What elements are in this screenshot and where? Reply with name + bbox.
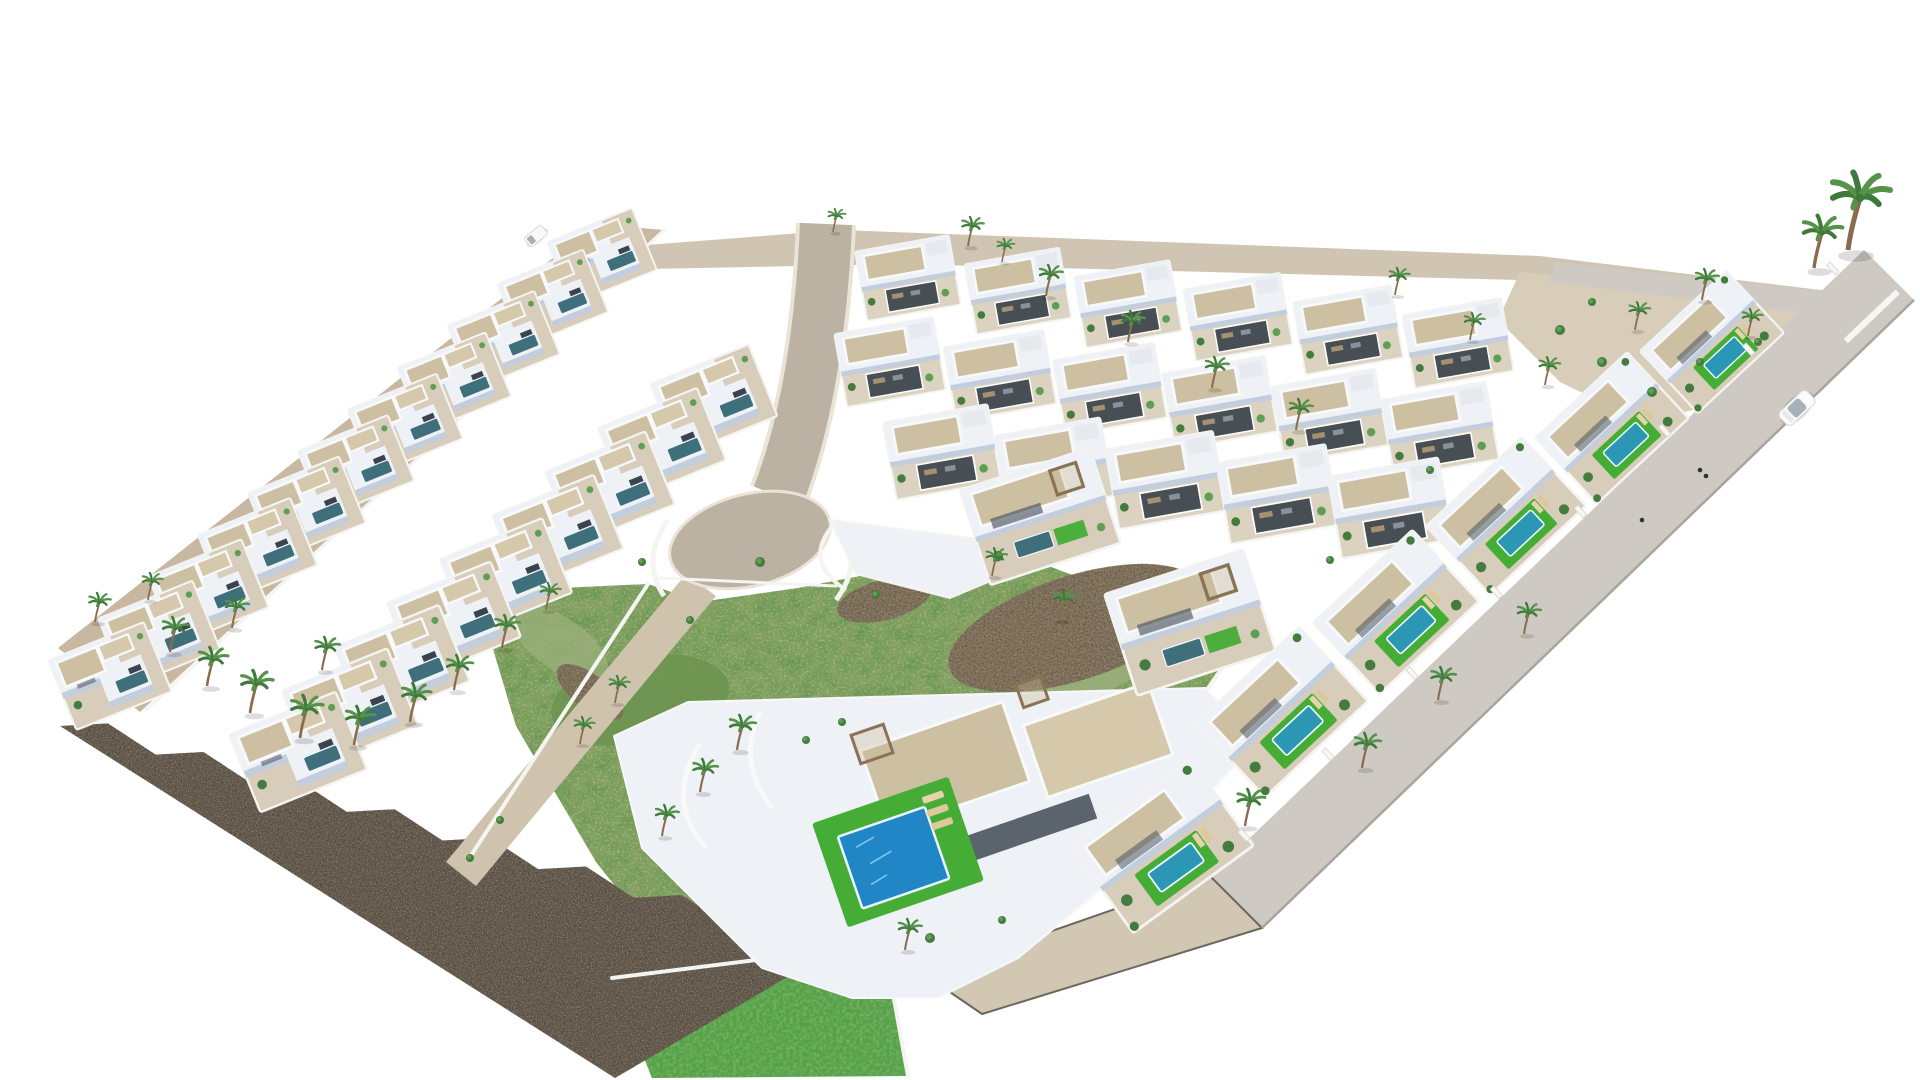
gate-post — [1322, 748, 1335, 761]
villa-grid — [1272, 369, 1389, 464]
villa-grid — [1293, 285, 1403, 374]
villa-grid — [965, 248, 1072, 335]
bulb-retaining-wall — [653, 520, 668, 596]
villa-grid — [1216, 444, 1339, 544]
villa-grid — [1105, 431, 1226, 529]
shrub-highlight — [1556, 326, 1562, 332]
shrub-highlight — [467, 855, 471, 859]
shrub-highlight — [926, 934, 932, 940]
shrub-highlight — [756, 558, 762, 564]
shrub-highlight — [687, 617, 691, 621]
shrub-highlight — [1427, 467, 1431, 471]
pedestrian — [1698, 468, 1703, 473]
palm-tree — [199, 647, 228, 692]
shrub-highlight — [873, 592, 877, 596]
palm-tree — [1804, 216, 1843, 276]
villa-grid — [1402, 298, 1513, 388]
palm-tree — [1238, 789, 1265, 831]
van — [522, 223, 550, 250]
palm-tree — [1833, 172, 1890, 261]
shrub-highlight — [803, 737, 807, 741]
shrub-highlight — [1589, 299, 1593, 303]
shrub-highlight — [1755, 339, 1759, 343]
villa-grid — [855, 235, 961, 321]
shrub-highlight — [497, 817, 501, 821]
aerial-villa-development-render — [0, 0, 1920, 1080]
villa-grid — [834, 317, 945, 407]
shrub-highlight — [999, 917, 1003, 921]
shrub-highlight — [639, 559, 643, 563]
villa-grid — [1328, 457, 1453, 558]
pedestrian — [1704, 474, 1709, 479]
shrub-highlight — [1327, 557, 1331, 561]
villa-grid — [1053, 343, 1167, 435]
shrub-highlight — [1697, 359, 1701, 363]
villa-grid — [1074, 260, 1182, 348]
render-canvas — [0, 0, 1920, 1080]
gate-post — [1406, 667, 1419, 680]
shrub-highlight — [1648, 388, 1654, 394]
villa-grid — [944, 330, 1057, 421]
palm-tree — [242, 670, 273, 719]
villa-grid — [1183, 273, 1292, 361]
pedestrian — [1640, 518, 1645, 523]
shrub-highlight — [839, 719, 843, 723]
villa-grid — [1162, 356, 1277, 449]
shrub-highlight — [1598, 358, 1604, 364]
